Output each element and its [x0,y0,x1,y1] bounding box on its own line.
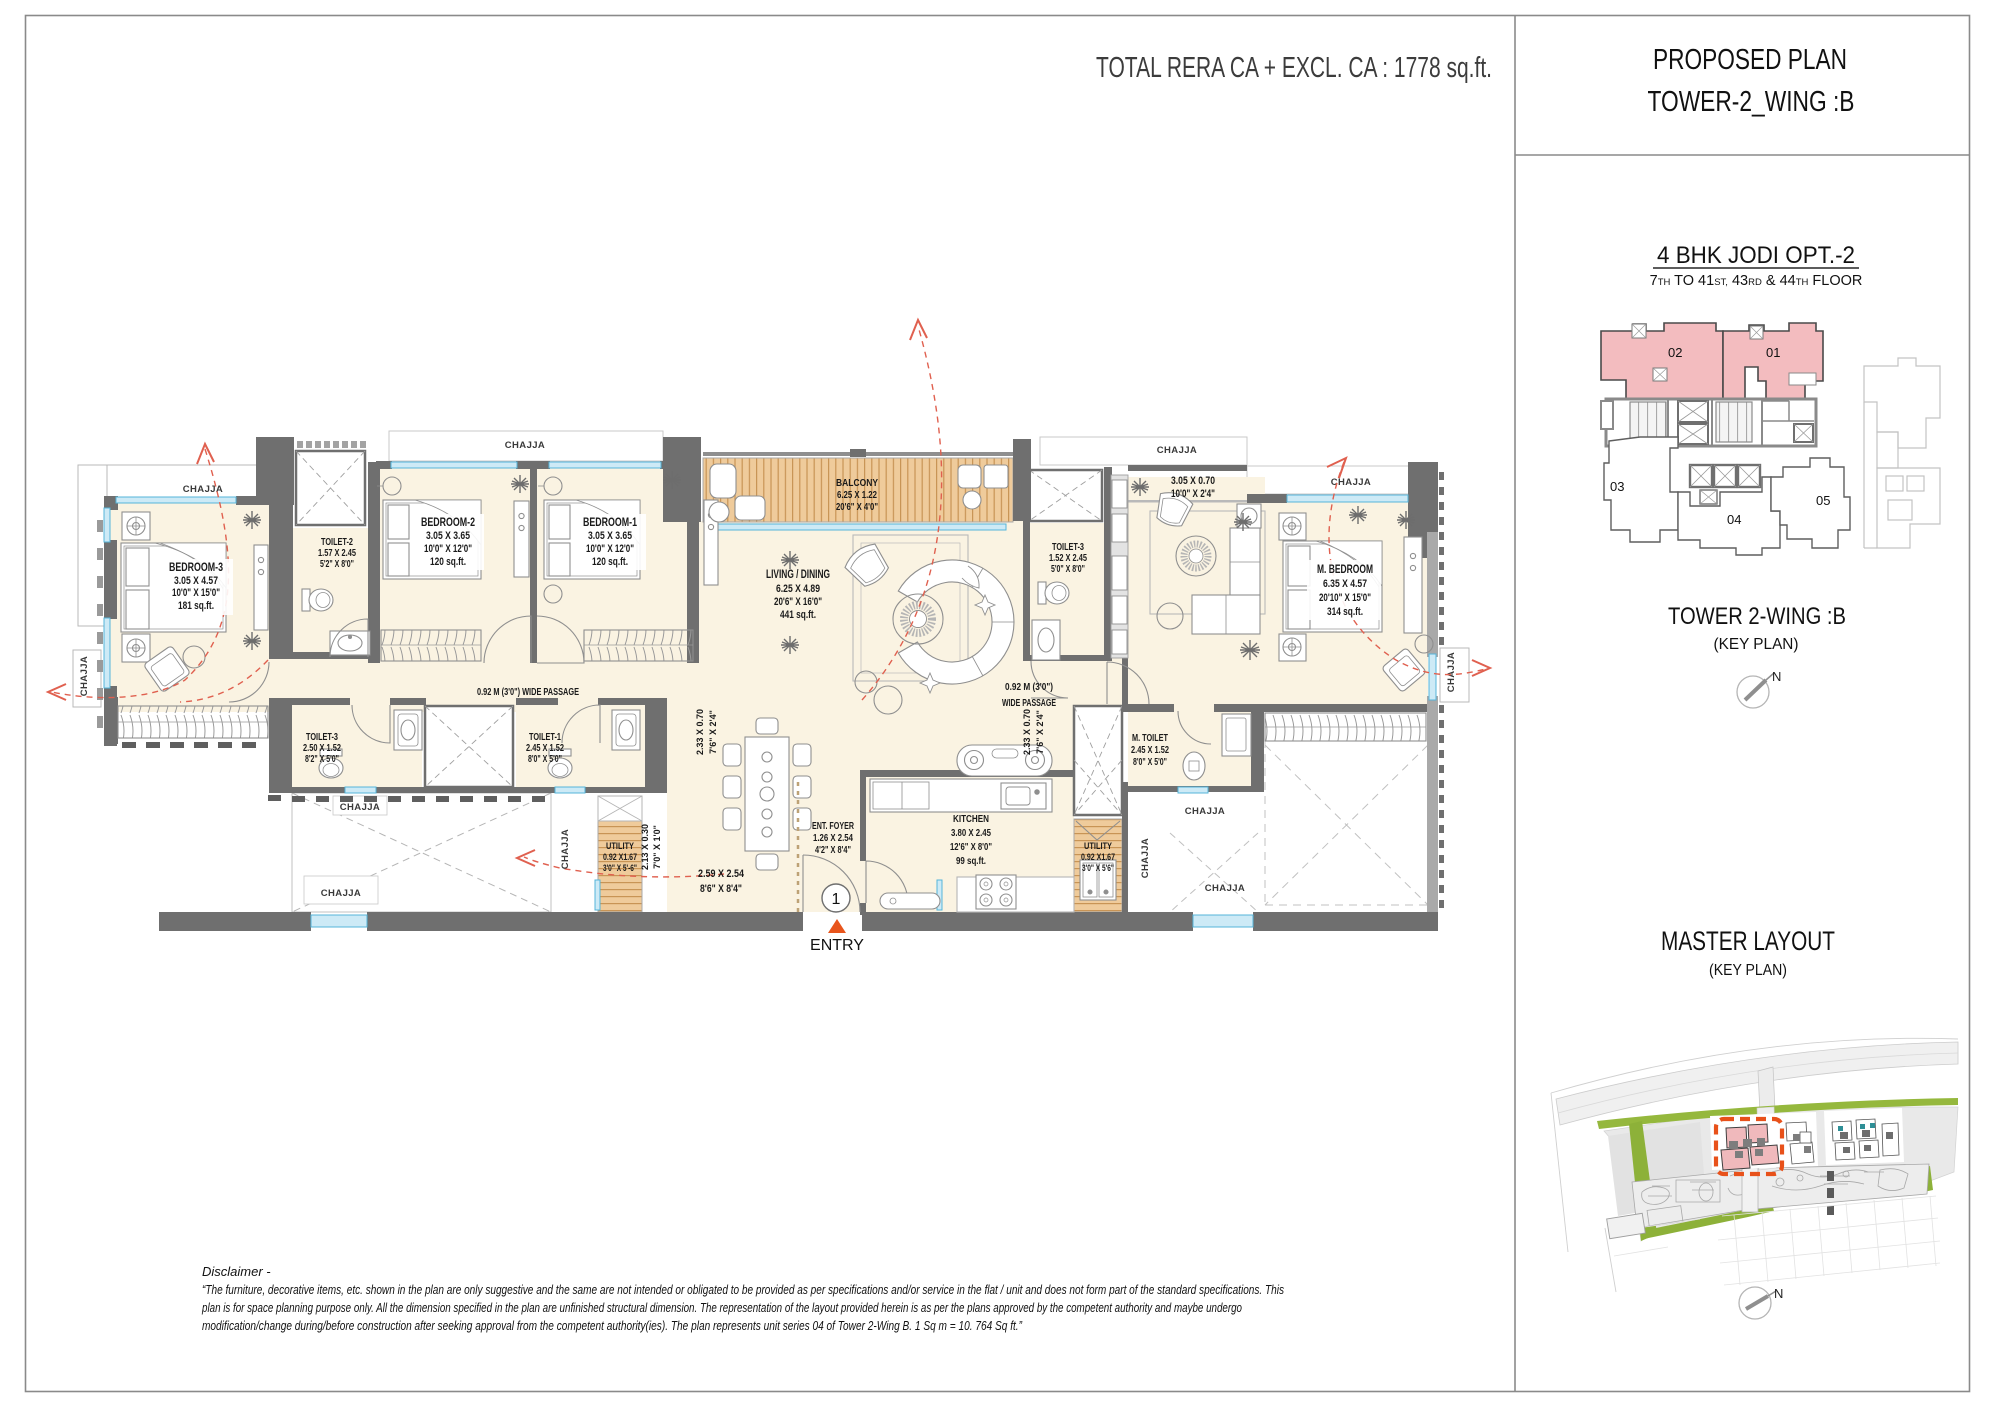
svg-text:1.26 X 2.54: 1.26 X 2.54 [813,833,853,844]
svg-text:CHAJJA: CHAJJA [1140,838,1151,878]
svg-text:3.05 X 4.57: 3.05 X 4.57 [174,575,218,587]
svg-text:TOWER-2_WING :B: TOWER-2_WING :B [1648,86,1855,118]
svg-text:ENTRY: ENTRY [810,937,864,954]
svg-text:20'10" X 15'0": 20'10" X 15'0" [1319,592,1371,604]
svg-text:KITCHEN: KITCHEN [953,814,989,825]
svg-text:4'2" X 8'4": 4'2" X 8'4" [815,845,851,856]
svg-text:(KEY PLAN): (KEY PLAN) [1709,962,1787,979]
svg-text:2.59 X 2.54: 2.59 X 2.54 [698,868,745,880]
svg-text:WIDE PASSAGE: WIDE PASSAGE [1002,698,1056,709]
svg-text:Disclaimer -: Disclaimer - [202,1264,271,1279]
svg-text:“The furniture, decorative ite: “The furniture, decorative items, etc. s… [202,1282,1284,1297]
svg-text:UTILITY: UTILITY [606,841,634,851]
svg-text:CHAJJA: CHAJJA [1446,652,1457,692]
svg-text:20'6" X 4'0": 20'6" X 4'0" [836,502,878,513]
svg-text:10'0" X 12'0": 10'0" X 12'0" [424,543,472,555]
svg-text:12'6" X 8'0": 12'6" X 8'0" [950,842,992,853]
svg-text:3'0" X 5'-6": 3'0" X 5'-6" [603,863,637,873]
svg-text:02: 02 [1668,345,1682,360]
svg-text:BEDROOM-1: BEDROOM-1 [583,517,637,529]
svg-text:4 BHK JODI OPT.-2: 4 BHK JODI OPT.-2 [1657,242,1855,269]
svg-text:0.92 M (3'0"): 0.92 M (3'0") [1005,682,1053,693]
svg-text:CHAJJA: CHAJJA [1331,477,1371,488]
svg-text:6.25 X 1.22: 6.25 X 1.22 [837,490,877,501]
svg-text:N: N [1772,669,1781,684]
svg-text:03: 03 [1610,479,1624,494]
svg-text:TOWER 2-WING :B: TOWER 2-WING :B [1668,603,1846,630]
svg-text:3.05 X 3.65: 3.05 X 3.65 [588,530,632,542]
svg-text:10'0" X 15'0": 10'0" X 15'0" [172,587,220,599]
svg-text:99 sq.ft.: 99 sq.ft. [956,856,986,867]
svg-text:6.25 X 4.89: 6.25 X 4.89 [776,583,820,595]
svg-text:BEDROOM-2: BEDROOM-2 [421,517,475,529]
svg-text:ENT. FOYER: ENT. FOYER [812,821,855,832]
svg-text:LIVING / DINING: LIVING / DINING [766,569,830,581]
svg-text:7'0" X 1'0": 7'0" X 1'0" [652,825,662,869]
svg-text:2.13 X 0.30: 2.13 X 0.30 [640,824,650,870]
svg-text:plan is for space planning pur: plan is for space planning purpose only.… [201,1300,1242,1315]
svg-text:0.92 X1.67: 0.92 X1.67 [1081,852,1115,862]
svg-text:BALCONY: BALCONY [836,478,878,489]
svg-text:7'6" X 2'4": 7'6" X 2'4" [708,710,718,754]
svg-text:2.45 X 1.52: 2.45 X 1.52 [526,743,564,754]
svg-text:N: N [1774,1286,1783,1301]
svg-text:CHAJJA: CHAJJA [340,802,380,813]
svg-text:120 sq.ft.: 120 sq.ft. [592,556,628,568]
svg-text:3.05 X 0.70: 3.05 X 0.70 [1171,475,1215,487]
svg-text:CHAJJA: CHAJJA [560,829,571,869]
svg-text:TOILET-3: TOILET-3 [1052,542,1084,553]
svg-text:2.50 X 1.52: 2.50 X 1.52 [303,743,341,754]
svg-text:1: 1 [832,891,841,908]
svg-text:10'0" X 12'0": 10'0" X 12'0" [586,543,634,555]
svg-text:(KEY PLAN): (KEY PLAN) [1714,636,1799,653]
svg-text:M. BEDROOM: M. BEDROOM [1317,564,1373,576]
svg-text:CHAJJA: CHAJJA [1205,883,1245,894]
svg-text:05: 05 [1816,493,1830,508]
svg-text:10'0" X 2'4": 10'0" X 2'4" [1171,488,1215,500]
svg-text:3.05 X 3.65: 3.05 X 3.65 [426,530,470,542]
svg-text:BEDROOM-3: BEDROOM-3 [169,562,223,574]
svg-text:0.92 M (3'0") WIDE PASSAGE: 0.92 M (3'0") WIDE PASSAGE [477,687,579,698]
svg-text:TOILET-2: TOILET-2 [321,537,353,548]
svg-text:6.35 X 4.57: 6.35 X 4.57 [1323,578,1367,590]
svg-text:181 sq.ft.: 181 sq.ft. [178,600,214,612]
svg-text:8'0" X 5'0": 8'0" X 5'0" [528,754,562,765]
svg-text:5'0" X 8'0": 5'0" X 8'0" [1051,564,1085,575]
svg-text:TOILET-3: TOILET-3 [306,732,338,743]
svg-text:8'0" X 5'0": 8'0" X 5'0" [1133,757,1167,768]
svg-text:UTILITY: UTILITY [1084,841,1112,851]
svg-text:5'2" X 8'0": 5'2" X 8'0" [320,559,354,570]
svg-text:M. TOILET: M. TOILET [1132,733,1168,744]
svg-text:2.45 X 1.52: 2.45 X 1.52 [1131,745,1169,756]
svg-text:20'6" X 16'0": 20'6" X 16'0" [774,596,822,608]
svg-text:120 sq.ft.: 120 sq.ft. [430,556,466,568]
svg-text:04: 04 [1727,512,1741,527]
svg-text:1.57 X 2.45: 1.57 X 2.45 [318,548,356,559]
svg-text:TOTAL RERA CA + EXCL. CA : 177: TOTAL RERA CA + EXCL. CA : 1778 sq.ft. [1096,52,1492,84]
svg-text:8'2" X 5'0": 8'2" X 5'0" [305,754,339,765]
svg-text:CHAJJA: CHAJJA [505,440,545,451]
svg-text:01: 01 [1766,345,1780,360]
svg-text:CHAJJA: CHAJJA [79,656,90,696]
svg-text:3'0" X 5'6": 3'0" X 5'6" [1082,863,1114,873]
svg-text:0.92 X1.67: 0.92 X1.67 [603,852,637,862]
svg-text:2.33 X 0.70: 2.33 X 0.70 [695,709,705,755]
svg-text:CHAJJA: CHAJJA [1185,806,1225,817]
svg-text:1.52 X 2.45: 1.52 X 2.45 [1049,553,1087,564]
svg-text:8'6" X 8'4": 8'6" X 8'4" [700,883,742,895]
svg-text:CHAJJA: CHAJJA [321,888,361,899]
svg-text:314 sq.ft.: 314 sq.ft. [1327,606,1363,618]
svg-text:PROPOSED PLAN: PROPOSED PLAN [1653,44,1847,76]
svg-text:CHAJJA: CHAJJA [1157,445,1197,456]
svg-text:MASTER LAYOUT: MASTER LAYOUT [1661,926,1835,956]
svg-text:2.33 X 0.70: 2.33 X 0.70 [1022,709,1032,755]
svg-text:TOILET-1: TOILET-1 [529,732,561,743]
svg-text:441 sq.ft.: 441 sq.ft. [780,609,816,621]
svg-text:3.80 X 2.45: 3.80 X 2.45 [951,828,991,839]
svg-text:7'6" X 2'4": 7'6" X 2'4" [1035,710,1045,754]
svg-text:modification/change during/bef: modification/change during/before constr… [202,1318,1023,1333]
